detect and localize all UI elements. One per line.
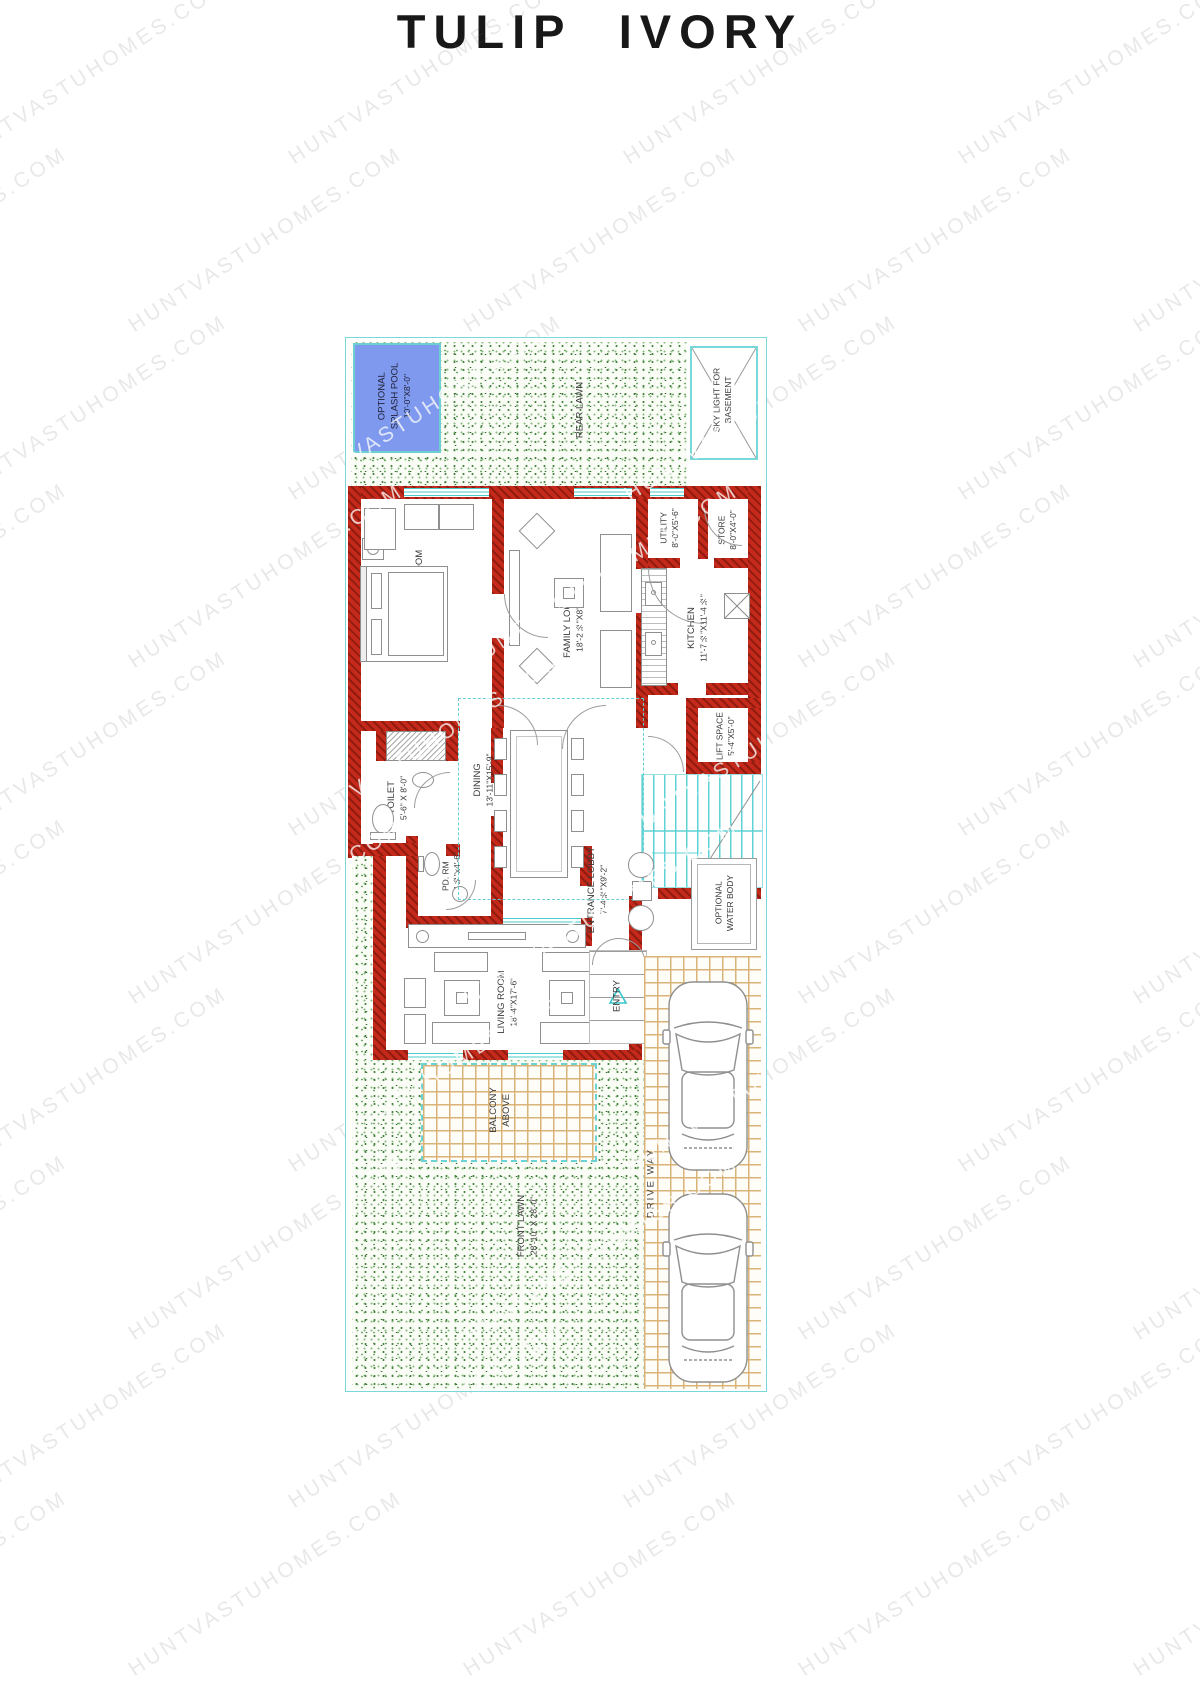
- dining-chair: [494, 774, 507, 796]
- wall: [376, 731, 386, 761]
- window: [404, 488, 489, 497]
- lobby-chair: [628, 905, 654, 931]
- pillow: [371, 619, 382, 655]
- door-arc: [446, 880, 476, 910]
- bed-blanket: [388, 572, 444, 656]
- page-title: TULIP IVORY: [0, 4, 1200, 59]
- sofa: [542, 952, 596, 972]
- wall: [348, 721, 460, 731]
- wall: [686, 762, 761, 774]
- car: [662, 978, 754, 1174]
- balcony-label: BALCONY ABOVE: [488, 1087, 514, 1132]
- front-lawn-label: FRONT LAWN 28'-10" X 28'-0": [516, 1195, 540, 1257]
- console-lamp: [566, 930, 579, 943]
- bed-headboard: [360, 566, 367, 662]
- door-arc: [704, 508, 742, 546]
- door-arc: [592, 938, 619, 965]
- coffee-table-inner: [456, 992, 468, 1004]
- toilet-wc: [372, 804, 394, 834]
- accent-chair: [519, 513, 556, 550]
- powder-tank: [418, 856, 424, 872]
- window: [574, 488, 632, 497]
- dining-table-inner: [516, 736, 562, 872]
- wall: [748, 486, 761, 774]
- bedroom-chair: [364, 508, 396, 550]
- dining-chair: [571, 846, 584, 868]
- door-arc: [648, 736, 684, 772]
- car: [662, 1190, 754, 1386]
- wall: [373, 843, 386, 1063]
- splash-pool-label: OPTIONAL SPLASH POOL 10'-0"X8'-0": [376, 363, 413, 430]
- wall: [686, 698, 761, 708]
- toilet-tank: [370, 832, 396, 840]
- accent-chair: [519, 648, 556, 685]
- powder-wc: [424, 852, 440, 876]
- lounge-table-inner: [563, 587, 575, 599]
- sofa: [434, 952, 488, 972]
- sofa: [432, 1022, 490, 1044]
- armchair: [404, 978, 426, 1008]
- dining-chair: [494, 846, 507, 868]
- sofa-seam: [438, 504, 440, 530]
- wall: [348, 486, 361, 858]
- console-lamp: [416, 930, 429, 943]
- living-room-label: LIVING ROOM 18'-4"X17'-6": [496, 970, 520, 1033]
- coffee-table-inner: [561, 992, 573, 1004]
- utility-label: UTILITY 8'-0"X5'-6": [659, 508, 682, 548]
- lobby-chair: [628, 852, 654, 878]
- water-body-label: OPTIONAL WATER BODY: [714, 875, 737, 931]
- lounge-sofa: [600, 630, 632, 688]
- wall: [492, 499, 504, 594]
- cupboard: [386, 731, 446, 761]
- pillow: [371, 573, 382, 609]
- window: [650, 488, 684, 497]
- armchair: [404, 1014, 426, 1044]
- dining-chair: [571, 810, 584, 832]
- wall: [648, 558, 680, 568]
- hob: [724, 593, 750, 619]
- lounge-sofa: [600, 534, 632, 612]
- dining-chair: [494, 810, 507, 832]
- wall: [636, 499, 648, 569]
- sink-drain: [651, 640, 656, 645]
- skylight-label: SKY LIGHT FOR BASEMENT: [712, 368, 735, 432]
- wall: [446, 731, 458, 761]
- lift-label: LIFT SPACE 5'-4"X5'-0": [715, 712, 738, 760]
- wall: [714, 558, 748, 568]
- driveway-label: DRIVE WAY: [646, 1148, 659, 1218]
- floor-plan: REAR LAWN OPTIONAL SPLASH POOL 10'-0"X8'…: [345, 337, 767, 1392]
- console-decor: [468, 932, 526, 940]
- rear-lawn-label: REAR LAWN: [575, 382, 588, 438]
- dining-chair: [571, 774, 584, 796]
- lobby-table: [632, 881, 652, 901]
- entry-label: ENTRY: [612, 980, 625, 1012]
- wall: [706, 683, 748, 695]
- wall: [373, 843, 418, 856]
